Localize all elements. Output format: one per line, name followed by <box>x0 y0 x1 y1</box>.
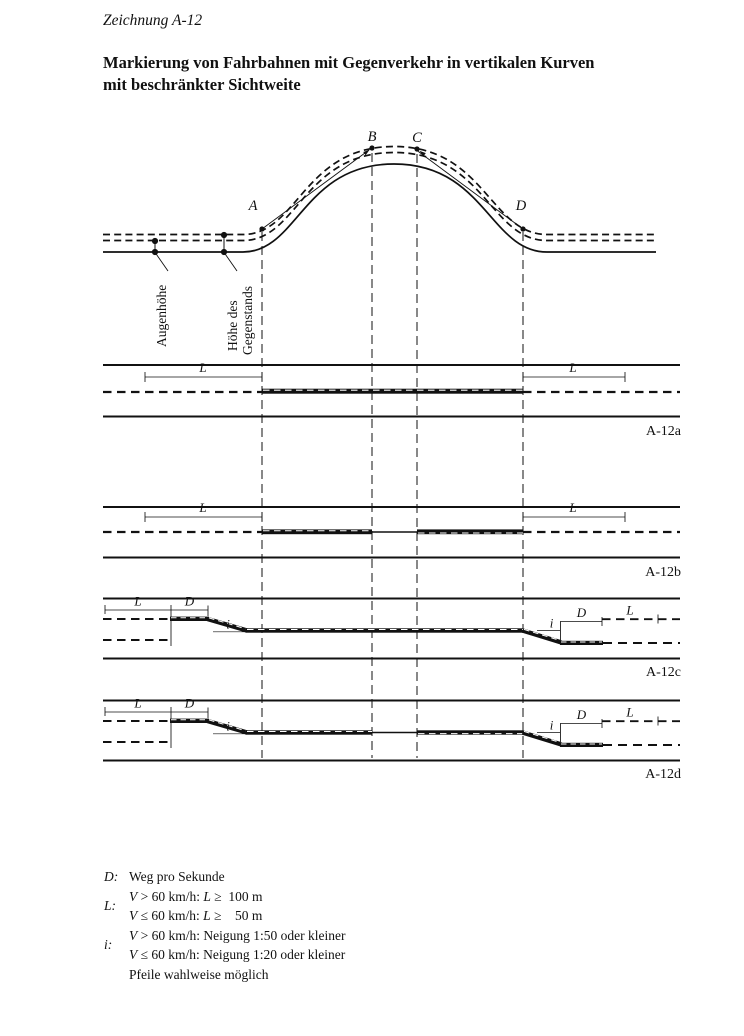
dim-l-right-a: L <box>568 360 576 375</box>
variant-label-a12c: A-12c <box>646 665 681 680</box>
vertical-curve-profile: A B C D Augenhöhe Höhe des Gegenstands <box>103 129 656 355</box>
dim-l-right-d: L <box>625 705 633 720</box>
variant-label-a12d: A-12d <box>645 767 681 782</box>
legend-i-lines: V > 60 km/h: Neigung 1:50 oder kleiner V… <box>129 926 345 965</box>
dim-d-left-c: D <box>184 594 195 609</box>
object-height-label-line1: Höhe des <box>225 300 240 351</box>
marking-variant-a12c: L D i i D L A-12c <box>103 594 681 681</box>
marking-variant-a12b: L L A-12b <box>103 500 681 580</box>
dim-l-left-d: L <box>133 696 141 711</box>
dim-d-right-c: D <box>576 605 587 620</box>
marking-variant-a12a: L L A-12a <box>103 360 682 439</box>
marking-variant-a12d: L D i i D L A-12d <box>103 696 681 783</box>
dim-l-left-b: L <box>198 500 206 515</box>
dim-d-left-d: D <box>184 696 195 711</box>
object-height-label-line2: Gegenstands <box>240 286 255 355</box>
legend-text-d: Weg pro Sekunde <box>129 867 225 887</box>
dim-i-left-d: i <box>226 719 230 734</box>
dim-d-right-d: D <box>576 707 587 722</box>
legend-l-lines: V > 60 km/h: L ≥ 100 m V ≤ 60 km/h: L ≥ … <box>129 887 263 926</box>
legend-row-i: i: V > 60 km/h: Neigung 1:50 oder kleine… <box>104 926 345 965</box>
variant-label-a12a: A-12a <box>646 424 682 439</box>
dim-l-left-c: L <box>133 594 141 609</box>
point-label-b: B <box>368 129 377 145</box>
dim-l-right-c: L <box>625 603 633 618</box>
point-label-a: A <box>248 198 258 214</box>
point-label-c: C <box>412 130 422 146</box>
dim-i-right-c: i <box>550 616 554 631</box>
legend: D: Weg pro Sekunde L: V > 60 km/h: L ≥ 1… <box>104 867 345 984</box>
legend-row-arrows: Pfeile wahlweise möglich <box>104 965 345 985</box>
dim-i-right-d: i <box>550 718 554 733</box>
legend-row-l: L: V > 60 km/h: L ≥ 100 m V ≤ 60 km/h: L… <box>104 887 345 926</box>
legend-key-i: i: <box>104 935 129 955</box>
dim-l-left-a: L <box>198 360 206 375</box>
legend-key-d: D: <box>104 867 129 887</box>
sight-reference-lines <box>262 153 523 758</box>
legend-row-d: D: Weg pro Sekunde <box>104 867 345 887</box>
legend-i-line1: V > 60 km/h: Neigung 1:50 oder kleiner <box>129 926 345 946</box>
legend-l-line1: V > 60 km/h: L ≥ 100 m <box>129 887 263 907</box>
legend-i-line2: V ≤ 60 km/h: Neigung 1:20 oder kleiner <box>129 945 345 965</box>
variant-label-a12b: A-12b <box>645 565 681 580</box>
legend-l-line2: V ≤ 60 km/h: L ≥ 50 m <box>129 906 263 926</box>
document-page: Zeichnung A-12 Markierung von Fahrbahnen… <box>0 0 744 1036</box>
eye-height-label: Augenhöhe <box>154 285 169 347</box>
legend-key-l: L: <box>104 896 129 916</box>
dim-i-left-c: i <box>226 617 230 632</box>
point-label-d: D <box>515 198 527 214</box>
tangent-point-dots <box>259 145 525 231</box>
legend-arrows-note: Pfeile wahlweise möglich <box>129 965 268 985</box>
dim-l-right-b: L <box>568 500 576 515</box>
